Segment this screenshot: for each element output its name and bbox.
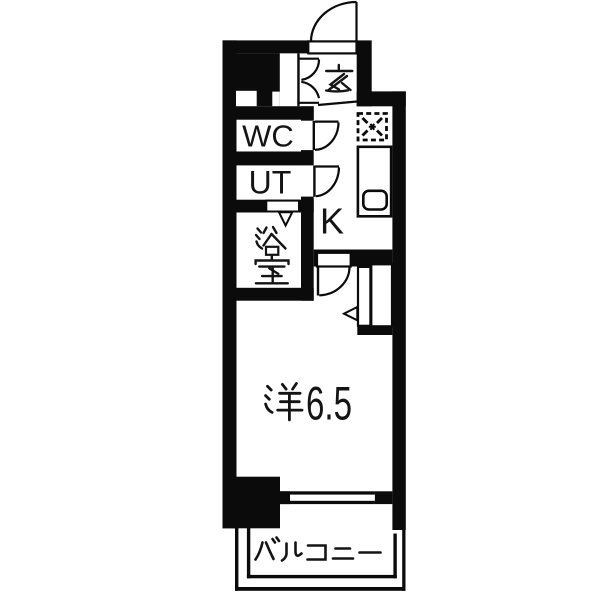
svg-text:UT: UT (249, 165, 292, 201)
svg-text:6.5: 6.5 (306, 377, 352, 430)
svg-text:K: K (320, 201, 344, 242)
svg-text:WC: WC (242, 119, 294, 154)
